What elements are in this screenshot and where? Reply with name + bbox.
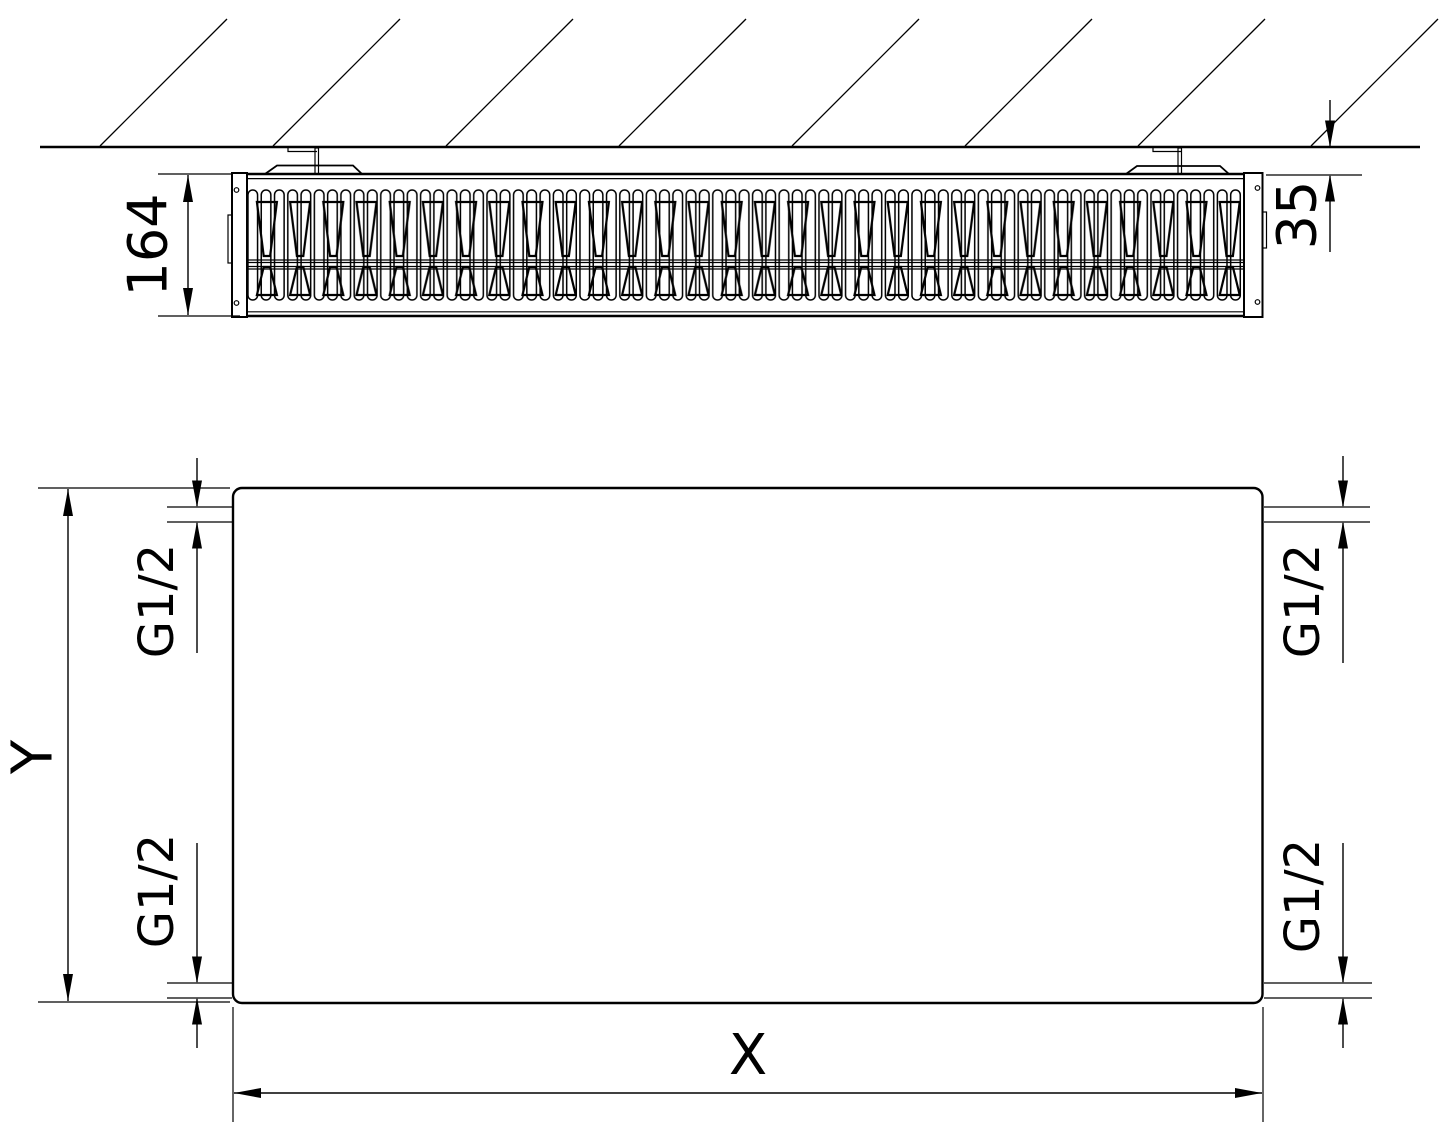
- radiator-panel-front: [233, 488, 1263, 1003]
- mounting-bracket-left: [265, 147, 362, 174]
- radiator-body-top-view: [228, 173, 1267, 317]
- drawing-canvas: 164 35 G1/2: [0, 0, 1441, 1131]
- top-view: 164 35: [40, 19, 1438, 317]
- connection-stub-top-right: G1/2: [1264, 456, 1370, 663]
- radiator-technical-drawing: 164 35 G1/2: [0, 0, 1441, 1131]
- mounting-bracket-right: [1126, 147, 1229, 174]
- width-dimension-label: X: [729, 1023, 767, 1088]
- wall-hatch: [40, 19, 1438, 147]
- dimension-wall-distance-35: 35: [1266, 100, 1363, 252]
- connection-label-bottom-left: G1/2: [129, 834, 185, 948]
- connection-label-top-left: G1/2: [129, 544, 185, 658]
- wall-distance-dimension-label: 35: [1266, 181, 1329, 250]
- dimension-width-X: X: [233, 1007, 1263, 1122]
- connection-stub-bottom-right: G1/2: [1264, 839, 1372, 1048]
- connection-label-bottom-right: G1/2: [1275, 839, 1331, 953]
- height-dimension-label: Y: [1, 739, 66, 775]
- end-cap-right: [1244, 173, 1263, 317]
- dimension-height-Y: Y: [1, 488, 231, 1002]
- convector-fin-grille: [247, 178, 1244, 313]
- dimension-depth-164: 164: [117, 174, 241, 316]
- front-view: G1/2 G1/2 G1/2 G1/2: [1, 456, 1373, 1122]
- depth-dimension-label: 164: [117, 193, 180, 296]
- connection-stub-bottom-left: G1/2: [129, 834, 232, 1048]
- connection-label-top-right: G1/2: [1275, 544, 1331, 658]
- end-cap-left: [232, 173, 247, 317]
